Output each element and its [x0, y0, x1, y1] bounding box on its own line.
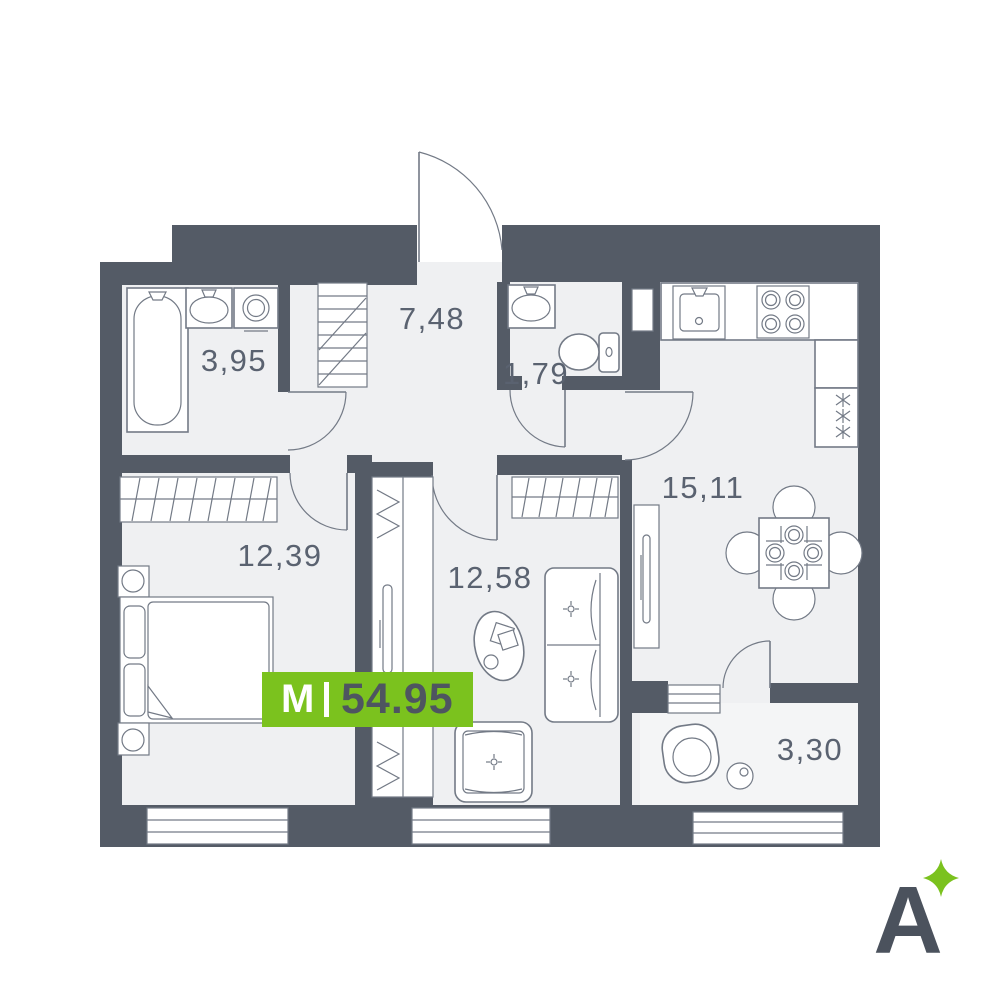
balcony-steps-icon	[668, 685, 720, 713]
brand-logo: A	[873, 859, 959, 974]
kitchen-counter-corner	[815, 340, 858, 388]
fridge-icon	[815, 388, 858, 447]
room-bedroom	[118, 477, 277, 755]
armchair-icon	[455, 722, 532, 802]
nightstand-icon	[118, 566, 149, 597]
bedroom-wardrobe-icon	[120, 477, 277, 522]
balcony-window-icon	[693, 812, 843, 844]
bedroom-window-icon	[147, 808, 288, 844]
toilet-area-label: 1,79	[503, 356, 569, 391]
room-hallway	[318, 283, 367, 387]
stove-icon	[757, 286, 809, 338]
bed-icon	[120, 597, 273, 723]
sofa-icon	[545, 568, 618, 722]
bathroom-area-label: 3,95	[201, 343, 267, 378]
bedroom-area-label: 12,39	[237, 538, 322, 573]
floor-plan-page: 3,95 7,48 1,79 12,39 12,58 15,11 3,30 M …	[0, 0, 1000, 1000]
washing-machine-icon	[234, 288, 278, 331]
bathtub-icon	[127, 288, 188, 432]
wc-sink-icon	[508, 285, 555, 328]
hall-closet-icon	[372, 477, 433, 797]
badge-letter: M	[281, 677, 314, 721]
badge-total-area: 54.95	[341, 675, 454, 723]
entrance-door-icon	[419, 152, 502, 262]
floor-plan-drawing: 3,95 7,48 1,79 12,39 12,58 15,11 3,30 M …	[0, 0, 1000, 1000]
sliding-door-icon	[383, 585, 392, 673]
hall-shelving-icon	[318, 283, 367, 387]
windows	[147, 808, 843, 844]
nightstand-icon	[118, 723, 149, 755]
badge-separator	[324, 682, 329, 717]
hallway-area-label: 7,48	[399, 301, 465, 336]
total-area-badge: M 54.95	[262, 672, 473, 727]
kitchen-sink-icon	[673, 286, 725, 339]
living-window-icon	[412, 808, 550, 844]
vent-shaft	[632, 289, 653, 331]
balcony-table-icon	[727, 763, 753, 789]
living-area-label: 12,58	[447, 560, 532, 595]
tv-cabinet-icon	[634, 505, 659, 648]
bathroom-sink-icon	[186, 288, 232, 328]
logo-letter: A	[873, 867, 942, 974]
kitchen-area-label: 15,11	[662, 470, 745, 505]
living-wardrobe-icon	[512, 477, 618, 518]
balcony-area-label: 3,30	[777, 732, 843, 767]
